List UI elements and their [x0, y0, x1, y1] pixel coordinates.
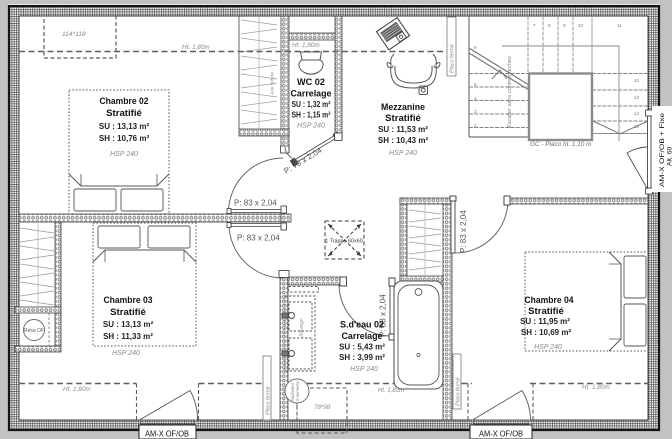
svg-text:HSP 240: HSP 240	[534, 344, 562, 351]
svg-text:HSP 240: HSP 240	[389, 150, 417, 157]
svg-text:5: 5	[474, 82, 477, 87]
svg-text:14: 14	[634, 111, 640, 116]
svg-text:HSP 240: HSP 240	[350, 366, 378, 373]
svg-text:HSP 240: HSP 240	[112, 350, 140, 357]
svg-text:Chambre 04: Chambre 04	[525, 295, 575, 306]
svg-text:AM-X OF/OB: AM-X OF/OB	[479, 429, 523, 439]
svg-text:Ht. 1,80m: Ht. 1,80m	[182, 44, 210, 51]
svg-text:Placo fermé: Placo fermé	[266, 386, 272, 415]
svg-text:Axe toiture: Axe toiture	[270, 72, 276, 96]
svg-text:SU : 13,13 m²: SU : 13,13 m²	[99, 122, 150, 131]
svg-text:15: 15	[634, 124, 640, 129]
svg-text:Ht. 1,80m: Ht. 1,80m	[582, 384, 610, 391]
svg-text:SU : 5,43 m²: SU : 5,43 m²	[339, 343, 385, 352]
svg-text:Chambre 02: Chambre 02	[100, 96, 149, 107]
svg-text:Chambre 03: Chambre 03	[104, 295, 153, 306]
svg-text:P: 83 x 2,04: P: 83 x 2,04	[459, 210, 468, 253]
svg-text:HSP 240: HSP 240	[110, 151, 138, 158]
svg-text:2: 2	[474, 123, 477, 128]
svg-text:12: 12	[634, 78, 640, 83]
svg-text:10: 10	[578, 23, 584, 28]
svg-text:P: 83 x 2,04: P: 83 x 2,04	[234, 199, 277, 208]
svg-text:SH : 1,15 m²: SH : 1,15 m²	[292, 111, 331, 120]
svg-text:SU : 11,53 m²: SU : 11,53 m²	[378, 125, 428, 134]
svg-text:Stratifié: Stratifié	[528, 306, 564, 317]
svg-text:Alterego: Alterego	[299, 318, 305, 338]
svg-text:Carrelage: Carrelage	[342, 331, 383, 342]
svg-text:SH : 11,33 m²: SH : 11,33 m²	[103, 332, 153, 341]
svg-text:1 Trappe 60x60: 1 Trappe 60x60	[325, 239, 362, 245]
svg-text:Stratifié: Stratifié	[106, 108, 142, 119]
svg-text:Alt. 60: Alt. 60	[667, 147, 672, 166]
svg-text:SU : 13,13 m²: SU : 13,13 m²	[103, 320, 154, 329]
svg-text:Ht. 1,80m: Ht. 1,80m	[63, 386, 91, 393]
svg-text:SH : 10,76 m²: SH : 10,76 m²	[99, 134, 150, 143]
svg-text:AM-X OF/OB + Fixe: AM-X OF/OB + Fixe	[659, 113, 666, 187]
svg-text:3: 3	[474, 109, 477, 114]
svg-text:Résa OF: Résa OF	[24, 328, 44, 334]
svg-text:Placo fermé: Placo fermé	[450, 44, 456, 73]
svg-text:SU : 1,32 m²: SU : 1,32 m²	[292, 100, 331, 109]
svg-text:9: 9	[563, 23, 566, 28]
svg-text:SH : 3,99 m²: SH : 3,99 m²	[339, 353, 385, 362]
svg-text:SH : 10,69 m²: SH : 10,69 m²	[521, 328, 572, 337]
svg-text:GC - Placo ht. 1,10 m: GC - Placo ht. 1,10 m	[530, 141, 592, 148]
svg-text:Stratifié: Stratifié	[385, 113, 421, 124]
svg-text:78*98: 78*98	[314, 404, 331, 411]
svg-text:6: 6	[474, 45, 477, 50]
svg-text:Ht. 1,80m: Ht. 1,80m	[292, 42, 320, 49]
svg-text:11: 11	[617, 23, 622, 28]
svg-text:7: 7	[533, 23, 536, 28]
svg-text:4: 4	[474, 96, 477, 101]
svg-text:SU : 11,95 m²: SU : 11,95 m²	[520, 317, 570, 326]
svg-text:WC 02: WC 02	[297, 77, 325, 88]
svg-text:Escalier sans contremarches: Escalier sans contremarches	[507, 56, 513, 128]
svg-text:SH : 10,43 m²: SH : 10,43 m²	[378, 136, 429, 145]
svg-text:Placo fermé: Placo fermé	[456, 377, 462, 406]
svg-text:13: 13	[634, 95, 640, 100]
svg-text:P: 83 x 2,04: P: 83 x 2,04	[237, 234, 280, 243]
svg-text:Carrelage: Carrelage	[291, 89, 332, 100]
svg-text:AM-X OF/OB: AM-X OF/OB	[145, 429, 189, 439]
svg-text:114*118: 114*118	[62, 31, 86, 38]
svg-text:S.d'eau 02: S.d'eau 02	[340, 320, 384, 331]
svg-text:Stratifié: Stratifié	[110, 307, 146, 318]
svg-text:HSP 240: HSP 240	[297, 123, 325, 130]
svg-text:S.serviette: S.serviette	[295, 381, 300, 401]
svg-text:8: 8	[548, 23, 551, 28]
svg-text:Mezzanine: Mezzanine	[381, 102, 425, 113]
